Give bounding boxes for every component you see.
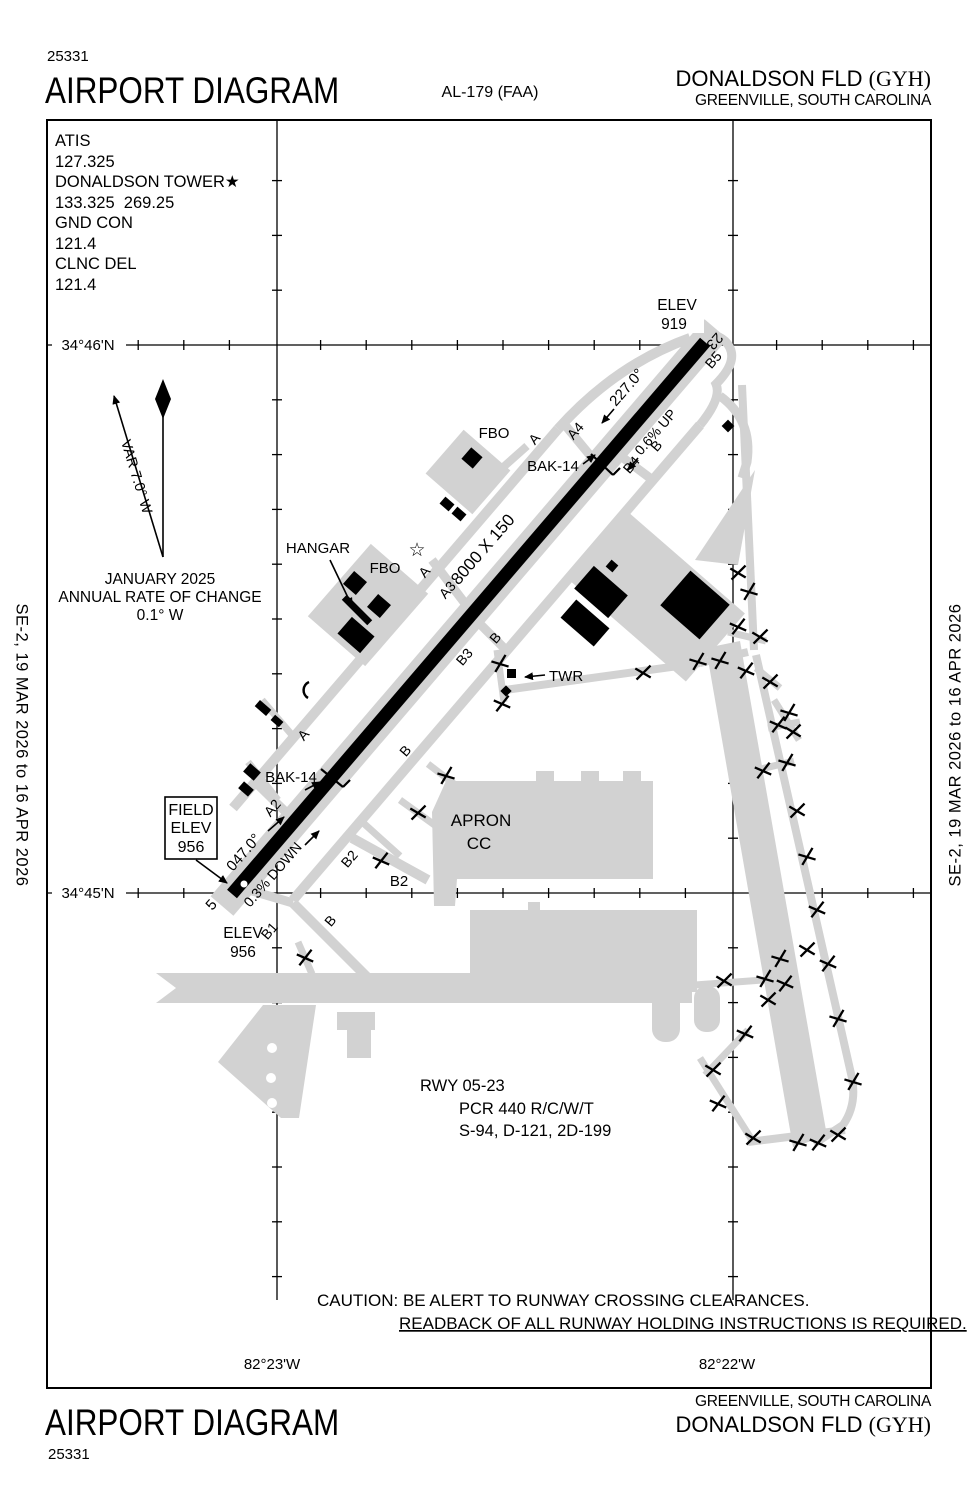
map-label: APRON <box>451 811 511 830</box>
building <box>440 497 455 512</box>
map-label: S-94, D-121, 2D-199 <box>459 1122 611 1140</box>
map-label: ELEV <box>171 820 212 837</box>
airport-icao-text: (GYH) <box>869 1412 931 1437</box>
gradient-down-arrow <box>305 831 319 845</box>
hangar-apron <box>308 544 428 666</box>
terminal-band <box>156 973 692 1003</box>
chart-border <box>47 120 931 1388</box>
closed-x-icon <box>710 1096 727 1112</box>
airport-diagram-chart: ELEV91923B5227.0°0.6% UPBA4B4FBOABAK-148… <box>0 0 978 1500</box>
heading-227-arrow <box>602 409 614 423</box>
twr-leader-arrow <box>525 675 545 677</box>
map-label: 956 <box>178 839 205 856</box>
map-label: ELEV <box>657 297 697 314</box>
small-apron-1 <box>337 1012 375 1030</box>
fence-arc <box>304 682 309 698</box>
map-label: BAK-14 <box>265 769 317 786</box>
airport-diagram-page: 25331 AIRPORT DIAGRAM AL-179 (FAA) DONAL… <box>0 0 978 1500</box>
runway-5-threshold-dot <box>241 881 248 888</box>
terminal-funnel <box>218 1005 316 1118</box>
closed-x-icon <box>799 941 816 957</box>
ramp-stub-2 <box>694 986 720 1032</box>
building <box>452 507 467 522</box>
chart-number-bottom: 25331 <box>48 1446 90 1463</box>
closed-stub-sw <box>700 1058 752 1140</box>
control-tower-building <box>507 669 516 678</box>
map-label: 34°46'N <box>61 337 114 354</box>
north-arrow-head <box>155 379 171 419</box>
map-label: B2 <box>390 873 408 890</box>
small-apron-2 <box>347 1030 371 1058</box>
map-label: 34°45'N <box>61 885 114 902</box>
map-label: RWY 05-23 <box>420 1077 505 1095</box>
map-label: ☆ <box>408 540 425 561</box>
map-label: TWR <box>549 668 583 685</box>
map-label: VAR 7.0° W <box>117 438 155 516</box>
airport-name-text: DONALDSON FLD <box>676 1412 869 1437</box>
map-label: FBO <box>370 560 401 577</box>
map-label: 82°22'W <box>699 1356 756 1373</box>
taxiway-network <box>222 329 853 1144</box>
map-label: READBACK OF ALL RUNWAY HOLDING INSTRUCTI… <box>399 1314 967 1333</box>
page-title-bottom: AIRPORT DIAGRAM <box>45 1402 339 1444</box>
map-label: CC <box>467 834 492 853</box>
apron-cc <box>432 771 653 906</box>
map-label: ELEV <box>223 925 263 942</box>
map-label: 82°23'W <box>244 1356 301 1373</box>
map-label: 0.1° W <box>137 607 184 624</box>
map-label: 919 <box>661 316 687 333</box>
taxiway-b1-south <box>293 903 368 978</box>
map-label: CAUTION: BE ALERT TO RUNWAY CROSSING CLE… <box>317 1291 810 1310</box>
map-label: 956 <box>230 944 256 961</box>
map-label: HANGAR <box>286 540 350 557</box>
map-label: JANUARY 2025 <box>105 571 216 588</box>
map-label: FIELD <box>168 802 213 819</box>
map-label: ANNUAL RATE OF CHANGE <box>58 589 261 606</box>
map-label: B <box>647 437 665 455</box>
map-label: BAK-14 <box>527 458 579 475</box>
airport-name-bottom: DONALDSON FLD (GYH) <box>676 1412 931 1438</box>
north-arrow <box>155 379 171 557</box>
airport-city-bottom: GREENVILLE, SOUTH CAROLINA <box>695 1393 931 1411</box>
map-label: FBO <box>479 425 510 442</box>
map-label: PCR 440 R/C/W/T <box>459 1100 594 1118</box>
closed-x-icon <box>730 564 747 580</box>
